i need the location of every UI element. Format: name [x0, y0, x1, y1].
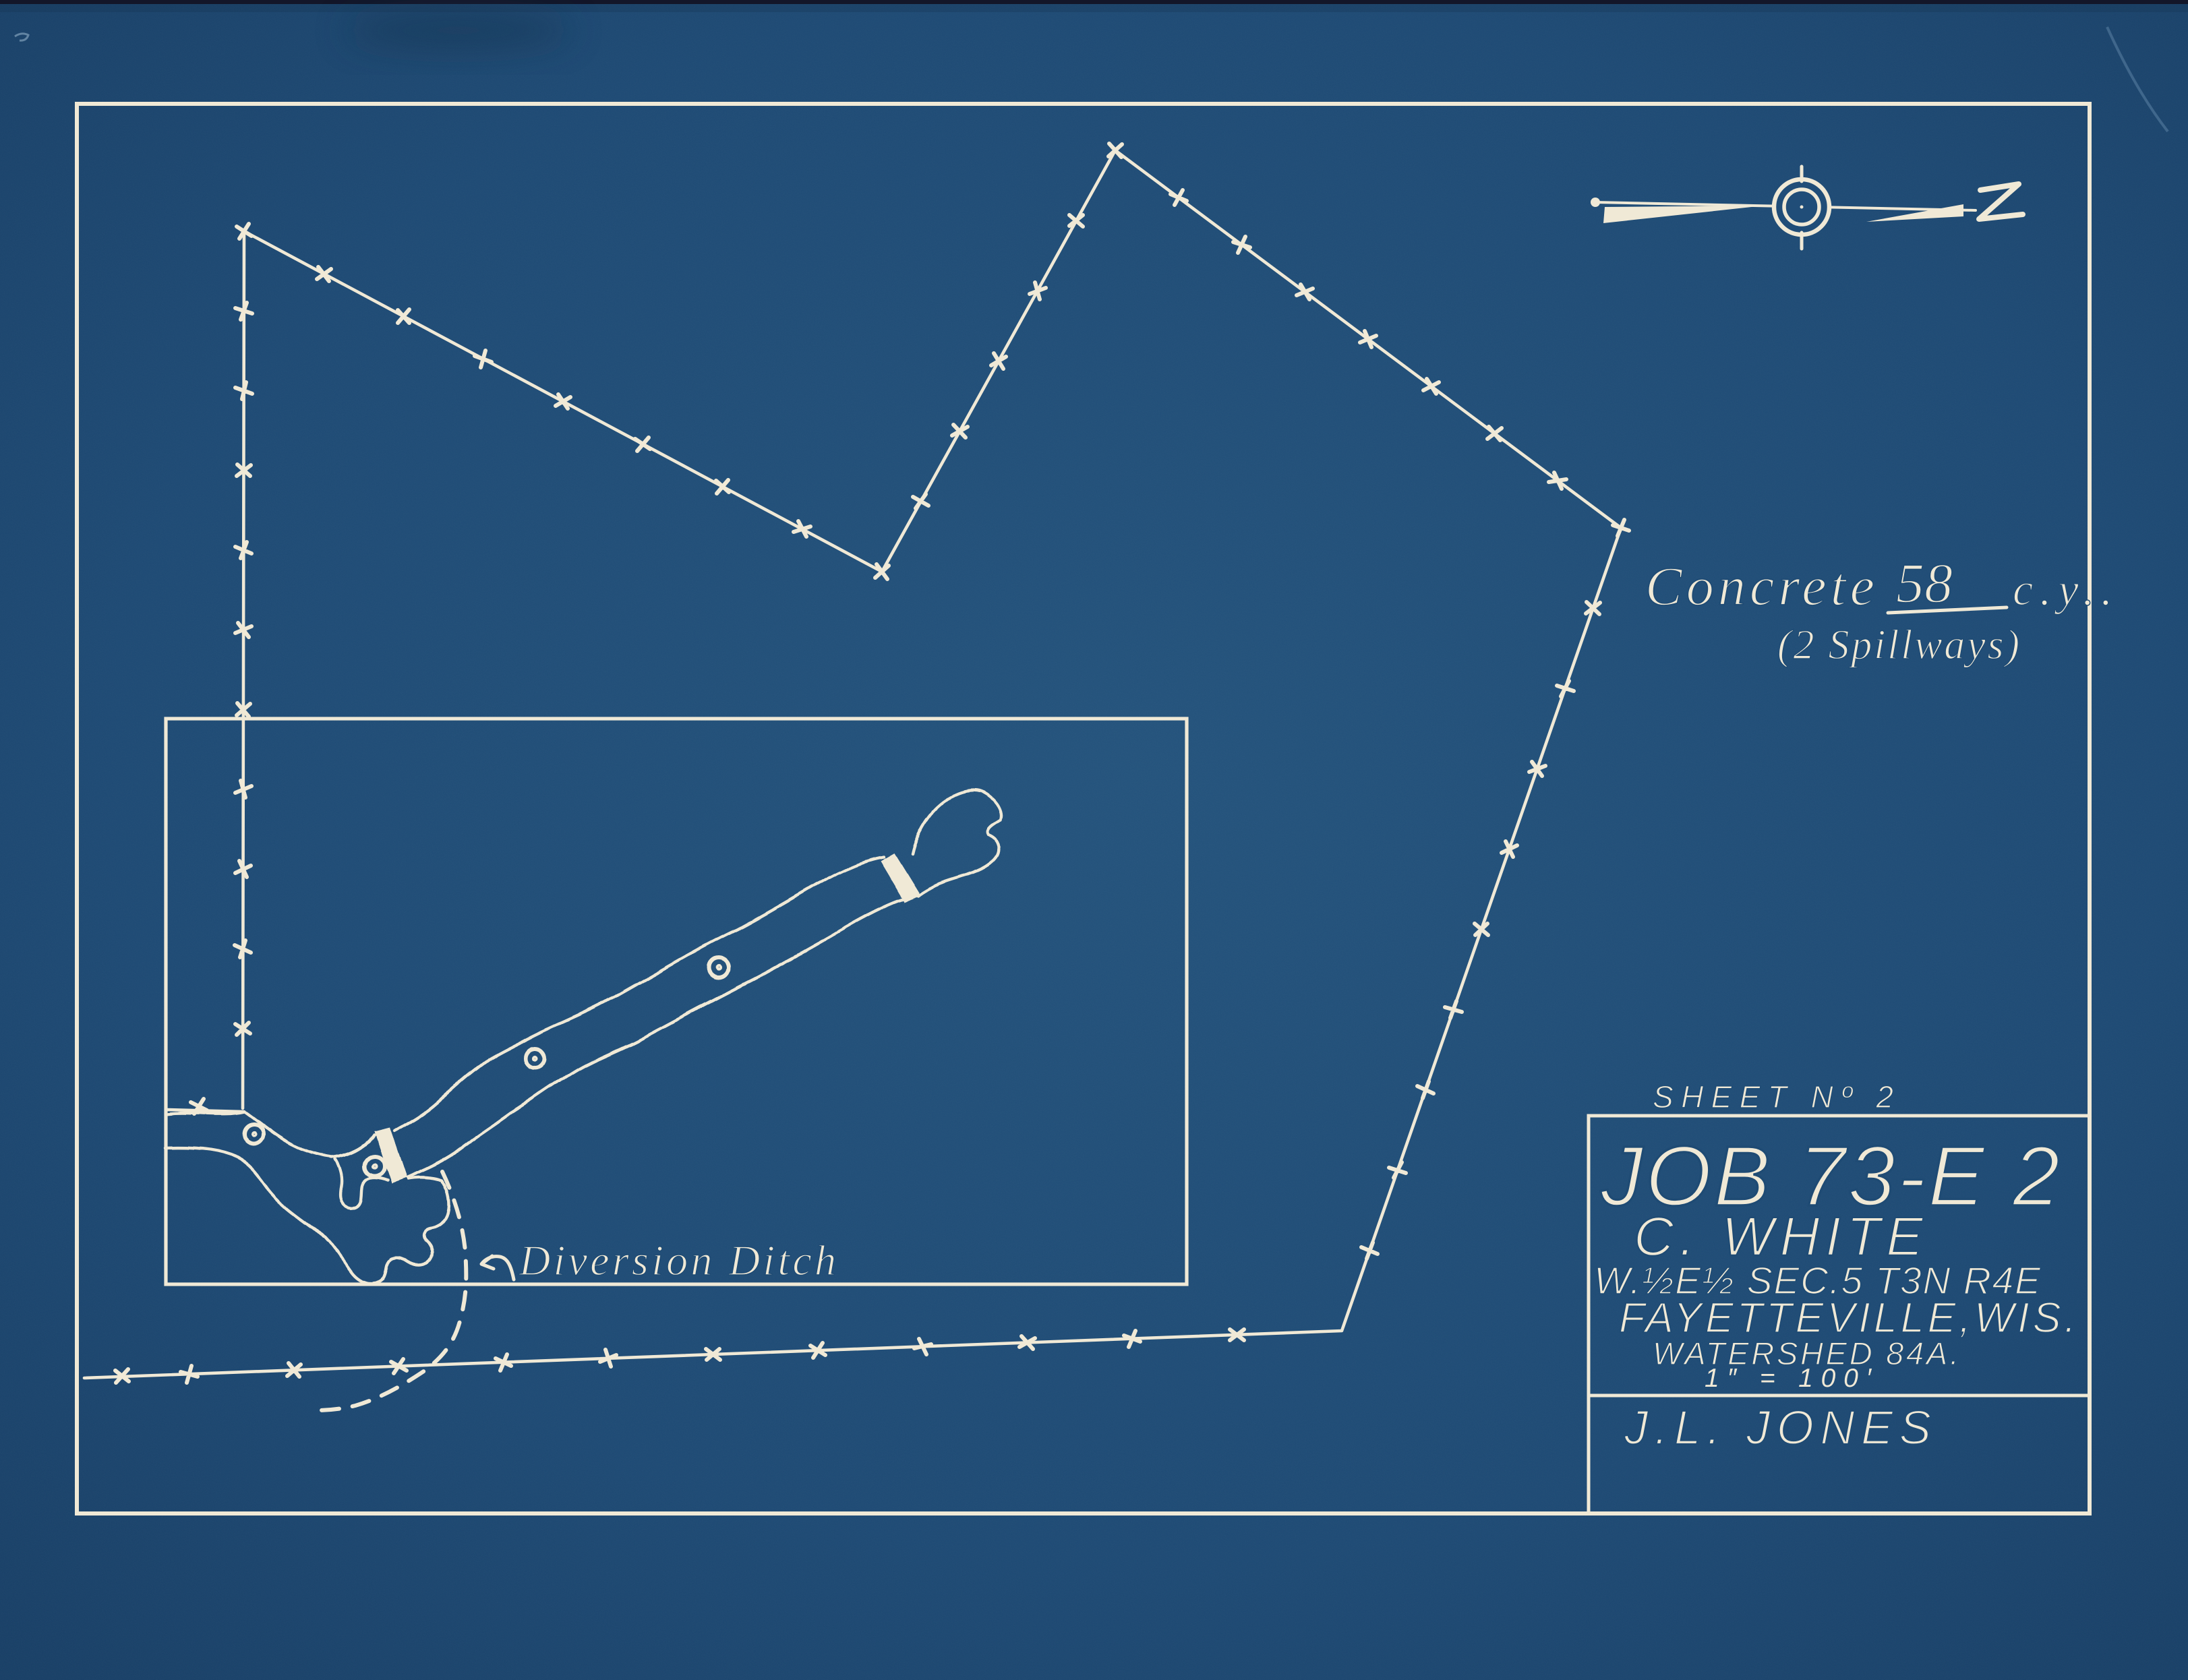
svg-text:58: 58 [1896, 552, 1953, 615]
svg-text:(2 Spillways): (2 Spillways) [1777, 622, 2019, 668]
svg-text:Concrete: Concrete [1645, 556, 1874, 617]
svg-text:1″ = 100′: 1″ = 100′ [1705, 1364, 1872, 1393]
svg-text:FAYETTEVILLE,WIS.: FAYETTEVILLE,WIS. [1619, 1294, 2076, 1342]
